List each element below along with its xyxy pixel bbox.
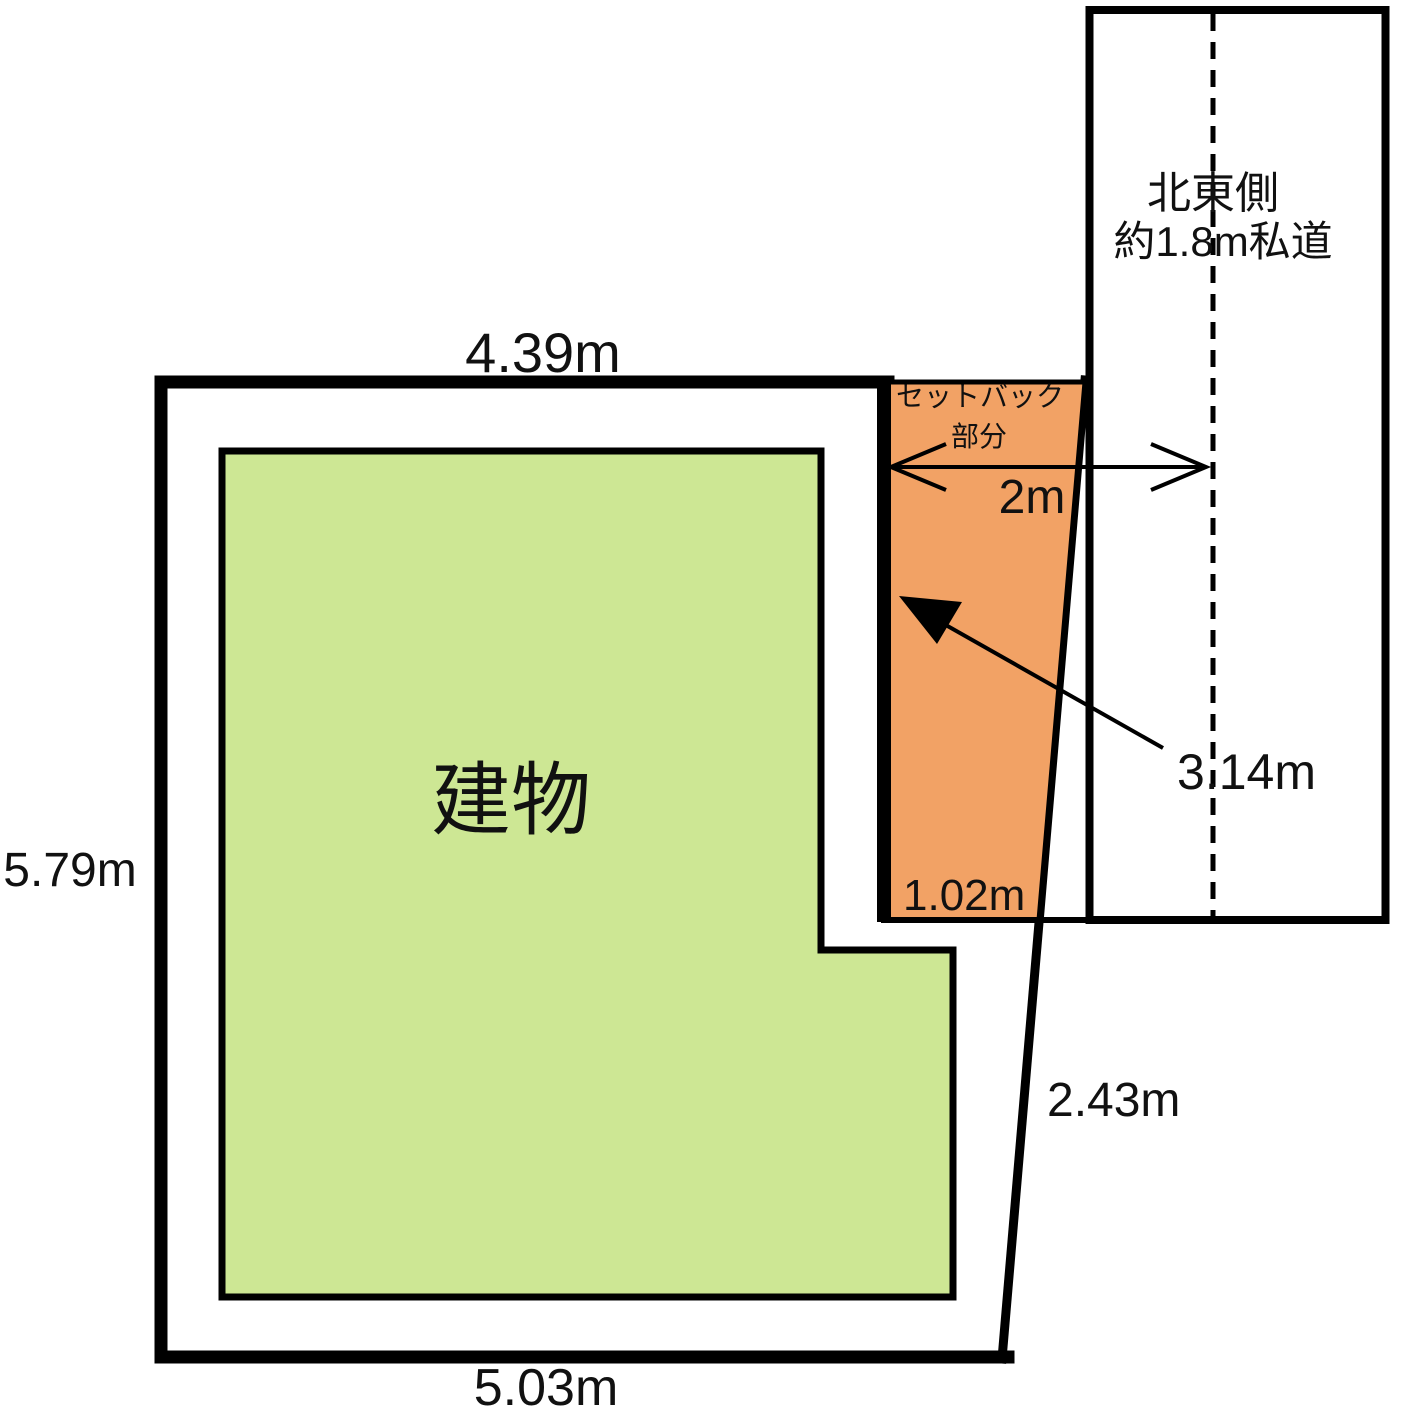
site-plan: 北東側 約1.8m私道 セットバック 部分 1.02m — [0, 0, 1405, 1417]
road-center-distance-label: 2m — [999, 471, 1066, 524]
building-label: 建物 — [431, 756, 591, 845]
left-height-label: 5.79m — [3, 844, 136, 897]
setback-fill — [884, 382, 1085, 920]
setback-length-label: 3.14m — [1177, 744, 1316, 800]
east-boundary-length-label: 2.43m — [1047, 1074, 1180, 1127]
top-width-label: 4.39m — [465, 321, 621, 384]
site-plan-diagram: 北東側 約1.8m私道 セットバック 部分 1.02m — [0, 0, 1405, 1417]
setback-caption-line1: セットバック — [896, 381, 1064, 412]
bottom-width-label: 5.03m — [474, 1359, 619, 1417]
road-caption-line1: 北東側 — [1147, 169, 1279, 218]
setback-bottom-width-label: 1.02m — [903, 871, 1025, 920]
setback-caption-line2: 部分 — [951, 421, 1007, 452]
road-caption-line2: 約1.8m私道 — [1113, 218, 1332, 265]
